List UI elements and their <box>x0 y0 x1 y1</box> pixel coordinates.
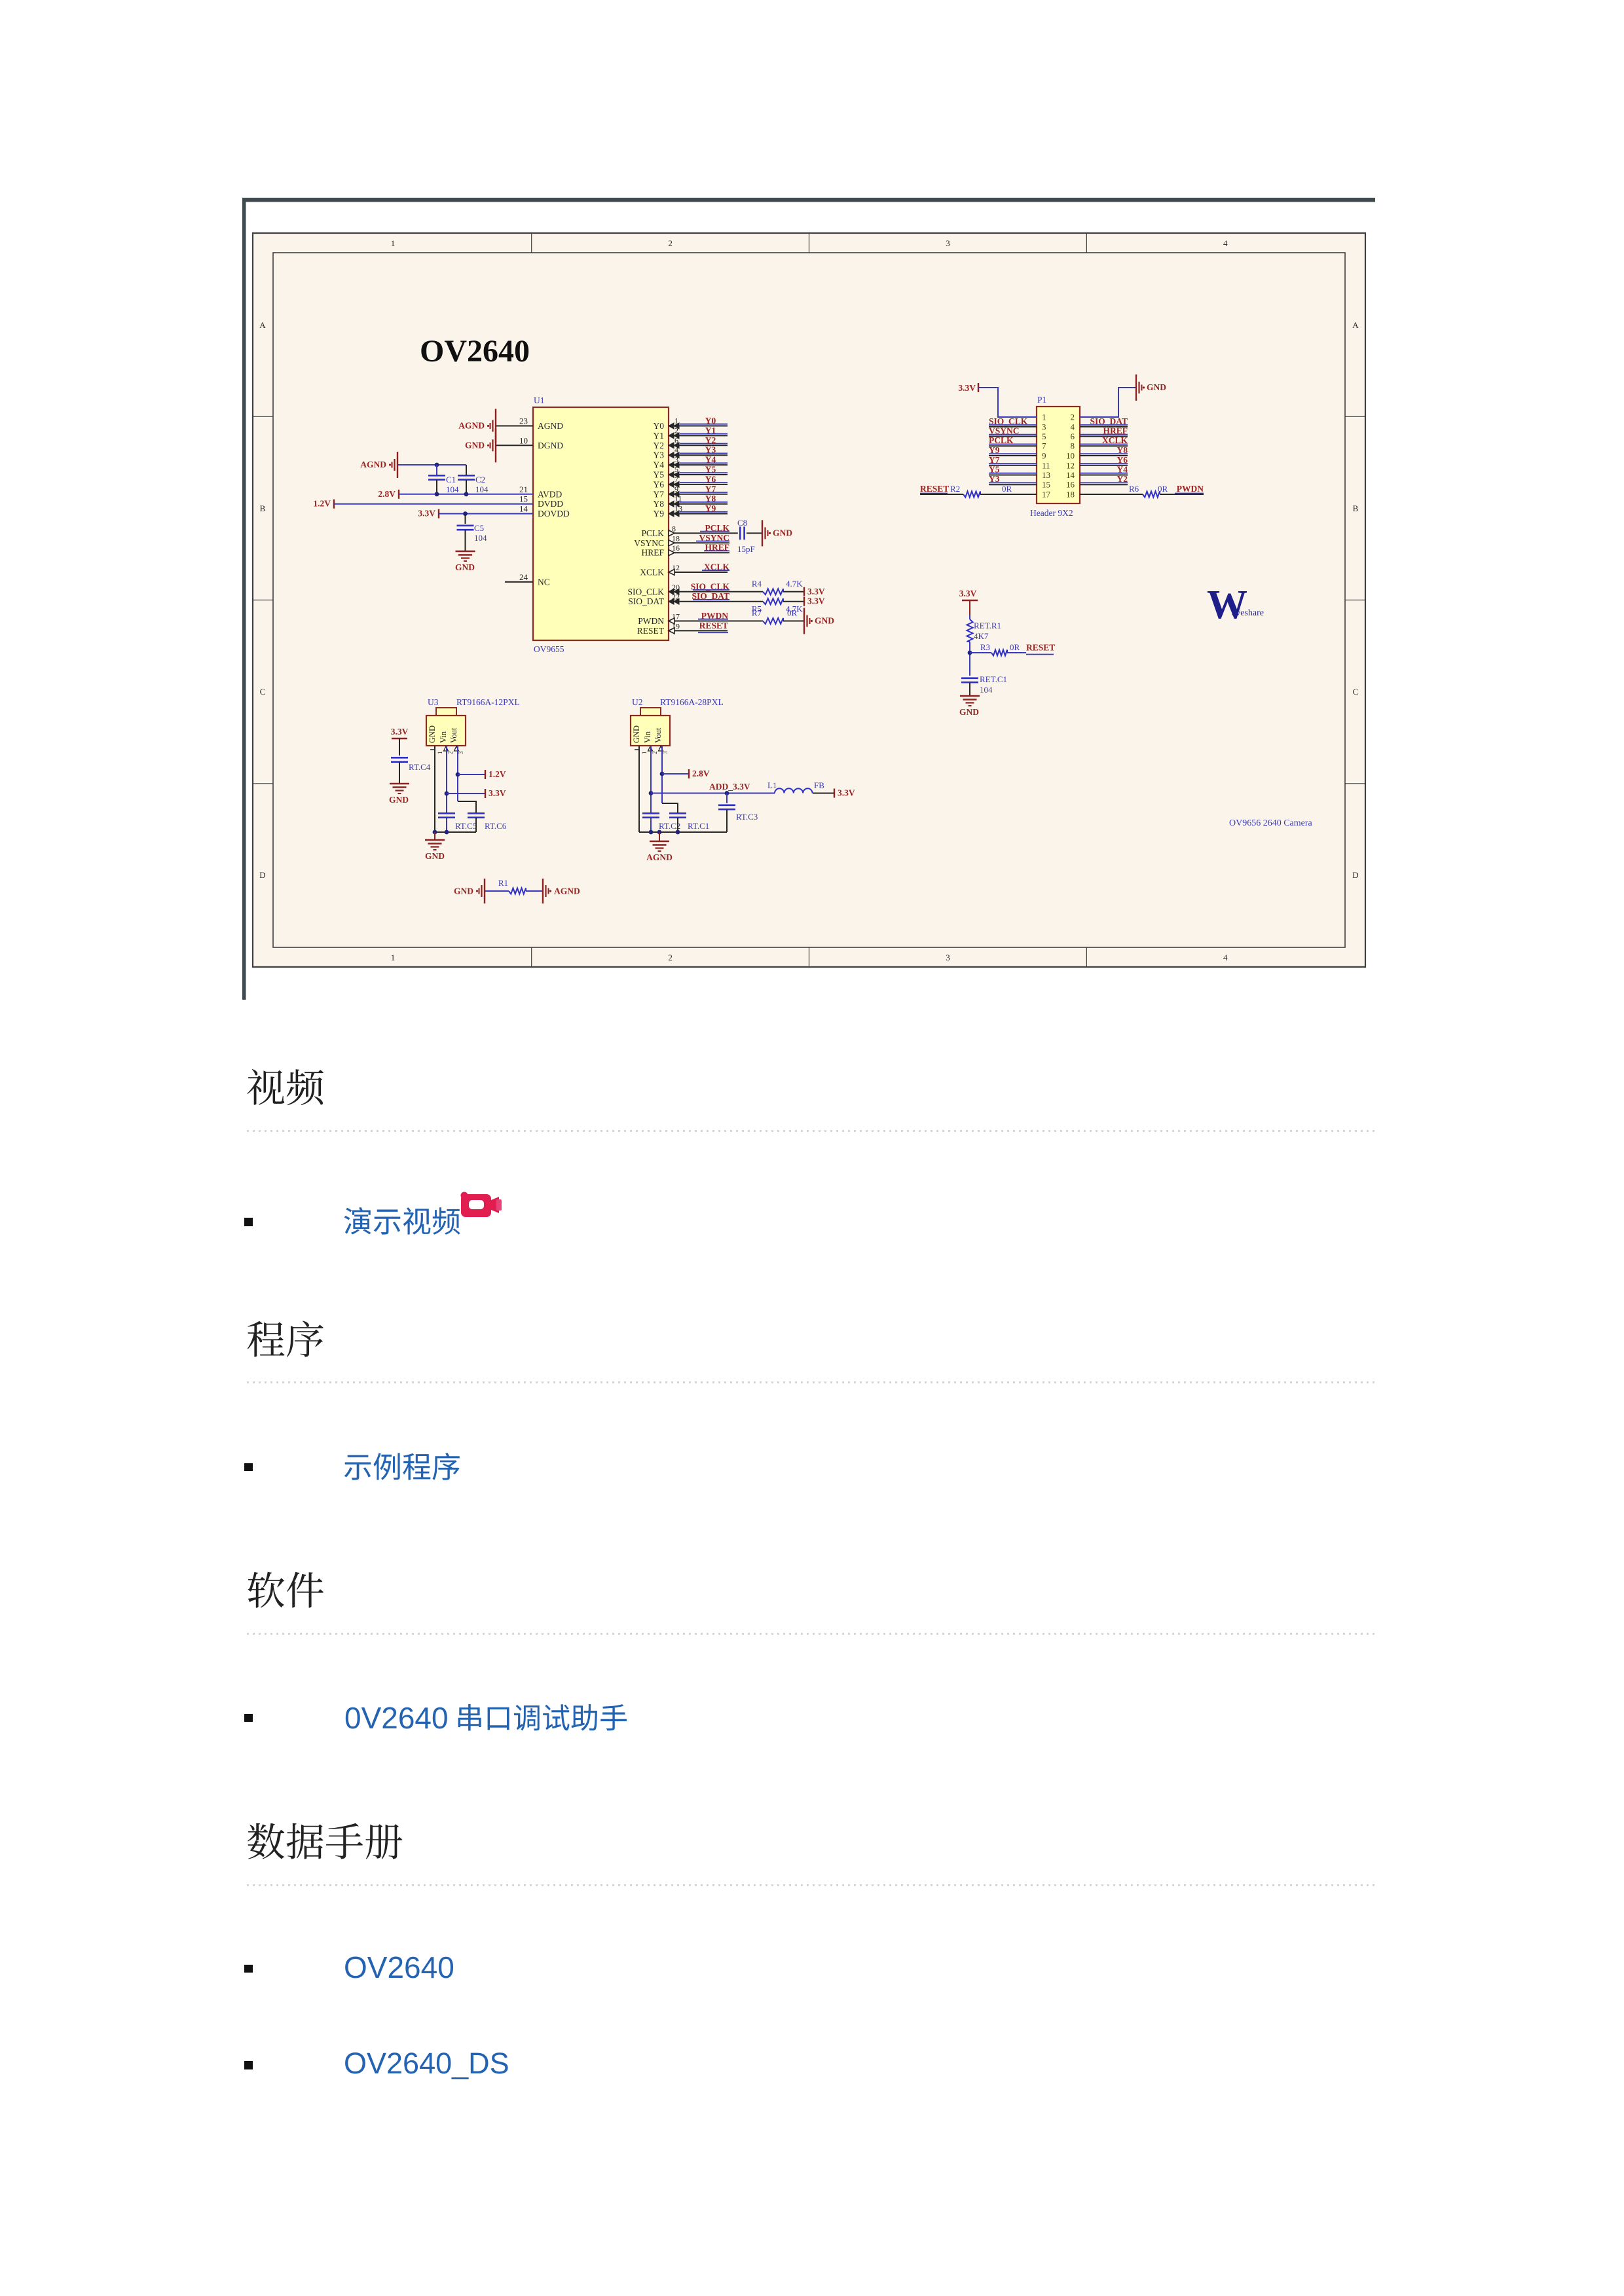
svg-text:A: A <box>1352 320 1359 330</box>
svg-text:3: 3 <box>1042 422 1046 431</box>
svg-text:15: 15 <box>1042 480 1050 490</box>
svg-text:104: 104 <box>446 484 459 494</box>
svg-text:6: 6 <box>1071 431 1075 441</box>
svg-text:Y6: Y6 <box>1117 455 1128 465</box>
svg-text:Vin: Vin <box>643 731 652 743</box>
svg-text:RT.C1: RT.C1 <box>688 821 709 831</box>
svg-text:GND: GND <box>632 725 641 743</box>
svg-text:1: 1 <box>674 416 678 426</box>
svg-text:4: 4 <box>1223 953 1228 962</box>
svg-text:Y3: Y3 <box>705 445 716 455</box>
svg-text:PCLK: PCLK <box>641 528 664 538</box>
svg-text:RT9166A-12PXL: RT9166A-12PXL <box>456 697 520 707</box>
svg-text:SIO_CLK: SIO_CLK <box>627 587 664 596</box>
svg-text:U2: U2 <box>632 697 643 707</box>
svg-text:3.3V: 3.3V <box>807 587 825 596</box>
svg-text:Y7: Y7 <box>654 489 665 499</box>
svg-text:8: 8 <box>1071 441 1075 451</box>
svg-text:21: 21 <box>519 484 528 494</box>
svg-text:0R: 0R <box>1158 484 1168 494</box>
svg-text:2: 2 <box>668 953 673 962</box>
svg-text:C: C <box>260 687 266 697</box>
svg-text:GND: GND <box>389 795 409 805</box>
svg-text:B: B <box>1353 503 1359 513</box>
svg-text:AGND: AGND <box>360 460 386 469</box>
svg-text:L1: L1 <box>767 780 777 790</box>
svg-text:8: 8 <box>672 524 676 533</box>
svg-text:GND: GND <box>773 528 792 538</box>
svg-text:C2: C2 <box>475 475 485 484</box>
svg-text:RET.C1: RET.C1 <box>980 674 1007 684</box>
svg-text:Y2: Y2 <box>654 441 665 450</box>
svg-text:HREF: HREF <box>641 548 664 558</box>
svg-text:2: 2 <box>674 426 678 435</box>
svg-text:D: D <box>259 870 265 880</box>
svg-text:5: 5 <box>1042 431 1046 441</box>
svg-text:R6: R6 <box>1129 484 1139 494</box>
svg-text:12: 12 <box>1066 460 1075 470</box>
svg-text:Y1: Y1 <box>654 431 665 441</box>
svg-text:GND: GND <box>1147 382 1166 392</box>
svg-text:4: 4 <box>1223 238 1228 248</box>
svg-text:NC: NC <box>538 577 550 587</box>
svg-text:1: 1 <box>1042 412 1046 422</box>
svg-text:C5: C5 <box>474 523 484 533</box>
svg-text:5: 5 <box>674 465 678 474</box>
svg-text:6: 6 <box>674 435 678 445</box>
svg-text:2: 2 <box>668 238 673 248</box>
svg-text:Y5: Y5 <box>705 465 716 475</box>
svg-text:18: 18 <box>672 534 680 543</box>
svg-text:C1: C1 <box>446 475 456 484</box>
svg-text:2.8V: 2.8V <box>378 489 396 499</box>
svg-text:13: 13 <box>674 504 682 513</box>
svg-text:Y8: Y8 <box>654 499 665 509</box>
svg-text:R1: R1 <box>498 878 508 888</box>
svg-text:RESET: RESET <box>920 484 949 494</box>
svg-text:2: 2 <box>652 752 658 755</box>
svg-text:XCLK: XCLK <box>640 568 664 577</box>
svg-text:AVDD: AVDD <box>538 489 563 499</box>
svg-text:XCLK: XCLK <box>1102 435 1128 445</box>
svg-text:SIO_DAT: SIO_DAT <box>1090 416 1128 426</box>
svg-text:GND: GND <box>455 562 475 572</box>
svg-text:17: 17 <box>672 612 680 621</box>
svg-text:Y9: Y9 <box>705 503 716 513</box>
svg-text:13: 13 <box>1042 470 1050 480</box>
svg-text:10: 10 <box>519 435 528 445</box>
svg-text:R2: R2 <box>950 484 960 494</box>
svg-text:Vout: Vout <box>654 727 663 743</box>
svg-text:Y4: Y4 <box>654 460 665 470</box>
svg-text:104: 104 <box>980 685 993 695</box>
svg-text:R7: R7 <box>752 608 762 618</box>
svg-text:0R: 0R <box>1010 642 1020 652</box>
svg-text:24: 24 <box>519 572 528 582</box>
svg-text:OV2640: OV2640 <box>420 334 530 369</box>
svg-text:20: 20 <box>672 583 680 592</box>
svg-text:Y3: Y3 <box>654 450 665 460</box>
svg-text:PCLK: PCLK <box>989 435 1014 445</box>
svg-text:ADD_3.3V: ADD_3.3V <box>709 782 750 792</box>
svg-text:0R: 0R <box>787 608 798 618</box>
svg-text:3: 3 <box>946 953 950 962</box>
svg-text:19: 19 <box>672 621 680 630</box>
svg-text:FB: FB <box>814 780 824 790</box>
svg-text:3.3V: 3.3V <box>958 383 976 393</box>
svg-text:AGND: AGND <box>458 421 485 431</box>
svg-text:VSYNC: VSYNC <box>989 426 1020 436</box>
svg-text:AGND: AGND <box>646 852 673 862</box>
svg-text:Y5: Y5 <box>654 470 665 480</box>
svg-text:0R: 0R <box>1002 484 1012 494</box>
svg-text:Y5: Y5 <box>989 465 1000 475</box>
svg-text:DOVDD: DOVDD <box>538 509 570 519</box>
svg-text:2: 2 <box>1071 412 1075 422</box>
svg-text:Header 9X2: Header 9X2 <box>1030 508 1073 518</box>
svg-text:Vin: Vin <box>439 731 448 743</box>
svg-text:16: 16 <box>1066 480 1075 490</box>
svg-text:RESET: RESET <box>1026 643 1055 653</box>
svg-text:15: 15 <box>519 494 528 504</box>
svg-text:2: 2 <box>447 752 454 755</box>
svg-text:Y0: Y0 <box>654 421 665 431</box>
svg-text:RT.C3: RT.C3 <box>736 812 758 822</box>
svg-text:10: 10 <box>1066 451 1075 461</box>
svg-text:14: 14 <box>519 504 528 514</box>
svg-text:Y9: Y9 <box>654 509 665 519</box>
svg-text:Y3: Y3 <box>989 474 1000 484</box>
svg-text:3: 3 <box>662 751 669 754</box>
svg-text:PWDN: PWDN <box>638 616 664 626</box>
svg-text:16: 16 <box>672 543 680 553</box>
svg-text:15pF: 15pF <box>737 544 755 554</box>
svg-text:3.3V: 3.3V <box>959 589 977 598</box>
svg-text:Y8: Y8 <box>705 494 716 503</box>
svg-text:9: 9 <box>674 484 678 494</box>
svg-text:U3: U3 <box>428 697 439 707</box>
svg-text:P1: P1 <box>1037 395 1046 405</box>
svg-text:RESET: RESET <box>637 626 665 636</box>
svg-text:1: 1 <box>437 752 443 755</box>
svg-text:SIO_CLK: SIO_CLK <box>989 416 1028 426</box>
svg-text:11: 11 <box>1042 460 1050 470</box>
svg-text:R3: R3 <box>980 642 990 652</box>
svg-text:104: 104 <box>474 533 487 543</box>
svg-text:RESET: RESET <box>699 621 728 630</box>
svg-text:4: 4 <box>674 445 678 454</box>
svg-text:12: 12 <box>672 563 680 572</box>
svg-text:Y6: Y6 <box>705 474 716 484</box>
svg-text:Y4: Y4 <box>1117 465 1128 475</box>
svg-text:23: 23 <box>519 416 528 426</box>
svg-text:AGND: AGND <box>554 886 580 896</box>
svg-text:14: 14 <box>1066 470 1075 480</box>
svg-text:GND: GND <box>465 440 485 450</box>
svg-text:RET.R1: RET.R1 <box>974 621 1001 630</box>
svg-text:3.3V: 3.3V <box>838 788 855 798</box>
svg-text:4: 4 <box>1071 422 1075 431</box>
svg-text:1: 1 <box>641 752 648 755</box>
svg-text:3: 3 <box>946 238 950 248</box>
svg-text:4.7K: 4.7K <box>786 579 803 589</box>
svg-text:GND: GND <box>454 886 473 896</box>
svg-text:Y8: Y8 <box>1117 445 1128 455</box>
svg-text:18: 18 <box>1066 490 1075 500</box>
svg-text:7: 7 <box>1042 441 1046 451</box>
svg-text:C: C <box>1353 687 1359 697</box>
svg-text:2.8V: 2.8V <box>692 769 710 778</box>
svg-text:0V2640: 0V2640 <box>344 1701 449 1735</box>
svg-text:17: 17 <box>1042 490 1051 500</box>
svg-text:SIO_DAT: SIO_DAT <box>628 596 665 606</box>
svg-text:1.2V: 1.2V <box>313 499 331 509</box>
svg-text:Y1: Y1 <box>705 426 716 435</box>
svg-text:A: A <box>259 320 266 330</box>
svg-text:3: 3 <box>458 751 464 754</box>
svg-text:22: 22 <box>672 592 680 602</box>
svg-text:C8: C8 <box>737 518 747 528</box>
svg-text:DGND: DGND <box>538 441 563 450</box>
svg-text:U1: U1 <box>534 395 545 405</box>
svg-text:1: 1 <box>391 953 396 962</box>
svg-text:OV9656 2640 Camera: OV9656 2640 Camera <box>1229 818 1313 828</box>
svg-text:RT.C5: RT.C5 <box>455 821 477 831</box>
svg-text:3.3V: 3.3V <box>391 727 409 737</box>
svg-text:Y2: Y2 <box>705 435 716 445</box>
svg-text:W: W <box>1207 583 1247 627</box>
svg-text:RT.C6: RT.C6 <box>485 821 507 831</box>
svg-text:OV9655: OV9655 <box>534 644 564 654</box>
svg-text:RT9166A-28PXL: RT9166A-28PXL <box>660 697 724 707</box>
svg-text:Y2: Y2 <box>1117 474 1128 484</box>
svg-text:104: 104 <box>475 484 489 494</box>
svg-text:DVDD: DVDD <box>538 499 563 509</box>
svg-text:Y9: Y9 <box>989 445 1000 455</box>
svg-text:Y6: Y6 <box>654 479 665 489</box>
svg-text:3: 3 <box>674 455 678 464</box>
svg-text:1: 1 <box>391 238 396 248</box>
svg-text:9: 9 <box>1042 451 1046 461</box>
svg-text:B: B <box>260 503 266 513</box>
svg-text:AGND: AGND <box>538 421 563 431</box>
svg-text:Y0: Y0 <box>705 416 716 426</box>
svg-text:Y4: Y4 <box>705 455 716 465</box>
svg-text:R4: R4 <box>752 579 762 589</box>
svg-text:D: D <box>1352 870 1358 880</box>
svg-text:Vout: Vout <box>449 727 458 743</box>
svg-text:RT.C4: RT.C4 <box>409 762 431 772</box>
svg-text:11: 11 <box>674 494 682 503</box>
svg-text:PWDN: PWDN <box>1177 484 1204 494</box>
svg-text:3.3V: 3.3V <box>489 788 506 798</box>
svg-text:GND: GND <box>815 616 834 626</box>
svg-text:3.3V: 3.3V <box>418 509 435 519</box>
svg-text:7: 7 <box>674 475 678 484</box>
svg-text:VSYNC: VSYNC <box>634 538 664 548</box>
svg-text:Y7: Y7 <box>705 484 716 494</box>
svg-text:GND: GND <box>425 851 445 861</box>
svg-text:GND: GND <box>959 707 979 717</box>
svg-text:3.3V: 3.3V <box>807 596 825 606</box>
svg-text:4K7: 4K7 <box>974 631 989 641</box>
svg-text:aveshare: aveshare <box>1232 608 1264 618</box>
svg-text:HREF: HREF <box>1103 426 1128 436</box>
svg-text:GND: GND <box>428 725 437 743</box>
svg-text:Y7: Y7 <box>989 455 1000 465</box>
svg-text:1.2V: 1.2V <box>489 769 506 779</box>
